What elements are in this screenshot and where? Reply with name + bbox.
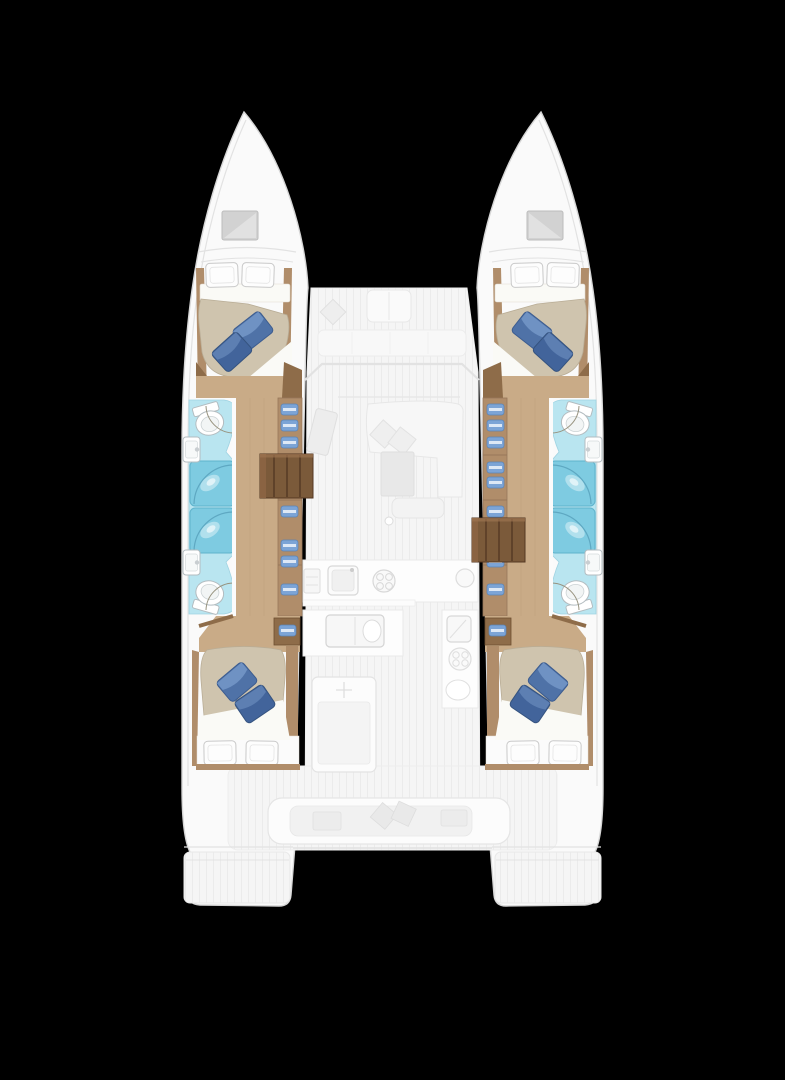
bench-pillow [441, 810, 467, 826]
prep-sink [447, 616, 471, 642]
ottoman [392, 498, 444, 518]
port-stairway [260, 454, 313, 498]
catamaran-floor-plan [0, 0, 785, 1080]
aft-cockpit [268, 798, 510, 848]
floor-plan-canvas [0, 0, 785, 1080]
basin [446, 680, 470, 700]
forward-bench [318, 330, 466, 356]
boat [182, 112, 603, 906]
saloon-table [381, 452, 414, 496]
port-swim-platform [184, 847, 293, 903]
starboard-swim-platform [492, 847, 601, 903]
stove-burners [449, 648, 471, 670]
mast-foot [385, 517, 393, 525]
basin [363, 620, 381, 642]
stove-burners [373, 570, 395, 592]
burner [456, 569, 474, 587]
bench-pillow [313, 812, 341, 830]
starboard-stairway [472, 518, 525, 562]
galley-appliance [304, 569, 320, 593]
